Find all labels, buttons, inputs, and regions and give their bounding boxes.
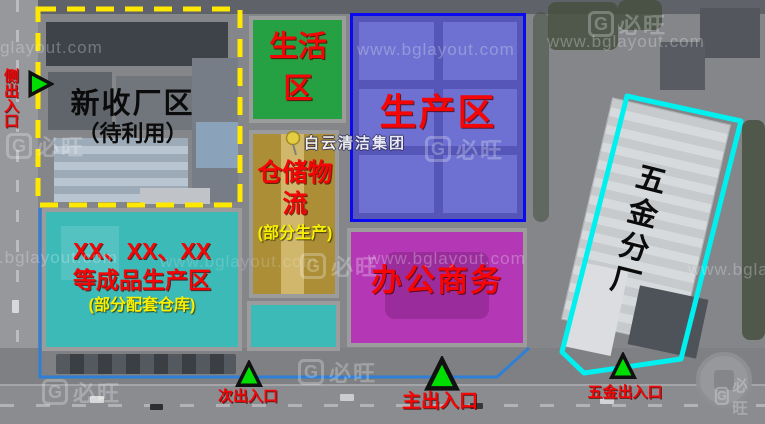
secondary-entrance-label: 次出入口: [215, 388, 281, 407]
watermark-url: www.bglayout.com: [160, 252, 318, 272]
poi-company-label: 白云清洁集团: [304, 132, 406, 153]
watermark-logo: G 必旺: [300, 250, 379, 282]
bg-car: [12, 300, 19, 313]
main-entrance-marker-icon: [420, 356, 464, 392]
hardware-entrance-label: 五金出入口: [584, 384, 666, 403]
bg-parked-cars: [56, 354, 236, 374]
watermark-logo: G 必旺: [715, 374, 756, 419]
main-entrance-label: 主出入口: [398, 390, 482, 414]
watermark-url: www.bglayout.com: [0, 38, 103, 58]
living-area-label: 生活区: [262, 26, 334, 110]
site-plan-map: 新收厂区 （待利用） 生活区 仓储物流 (部分生产) 生产区 XX、XX、XX …: [0, 0, 765, 424]
bg-trees: [742, 120, 765, 340]
warehouse-sublabel: (部分生产): [244, 224, 346, 244]
pushpin-icon: [285, 130, 301, 156]
bg-car: [150, 404, 163, 410]
hardware-entrance-marker-icon: [608, 352, 638, 380]
watermark-url: www.bglayout.com: [688, 260, 765, 280]
side-entrance-label: 侧出入口: [3, 58, 18, 138]
zone-finished-products-annex: [247, 301, 340, 351]
side-entrance-arrow-icon: [26, 70, 54, 98]
watermark-url: www.bglayout.com: [357, 40, 515, 60]
bg-building: [140, 188, 210, 204]
watermark-url: www.bglayout.com: [368, 249, 526, 269]
secondary-entrance-marker-icon: [234, 360, 264, 388]
finished-products-sublabel: (部分配套仓库): [42, 296, 242, 316]
new-factory-label: 新收厂区: [40, 86, 225, 122]
bg-car: [340, 394, 354, 401]
watermark-logo: G 必旺: [588, 8, 667, 40]
watermark-url: www.bglayout.com: [0, 248, 118, 268]
warehouse-label: 仓储物流: [252, 158, 338, 221]
production-area-label: 生产区: [350, 90, 526, 136]
watermark-logo: G 必旺: [6, 130, 85, 162]
bg-building: [700, 8, 760, 58]
watermark-logo: G 必旺: [42, 376, 121, 408]
watermark-logo: G 必旺: [425, 133, 504, 165]
watermark-logo: G 必旺: [298, 356, 377, 388]
